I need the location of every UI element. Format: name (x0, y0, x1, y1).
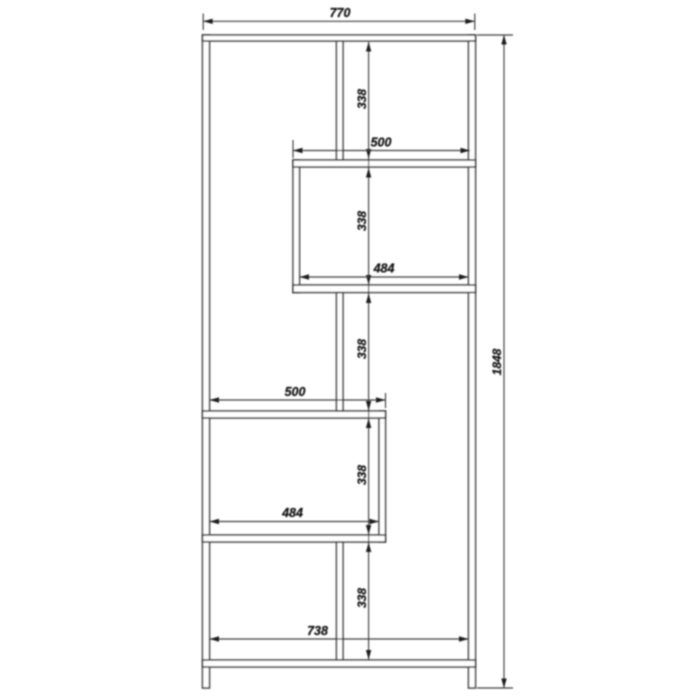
svg-text:338: 338 (355, 588, 369, 608)
svg-text:338: 338 (355, 211, 369, 231)
svg-text:1848: 1848 (490, 348, 504, 375)
svg-text:738: 738 (307, 624, 328, 638)
svg-text:338: 338 (355, 89, 369, 109)
svg-text:770: 770 (330, 6, 351, 20)
svg-text:500: 500 (371, 136, 392, 150)
svg-text:484: 484 (373, 262, 395, 276)
svg-text:484: 484 (281, 506, 303, 520)
svg-text:500: 500 (285, 385, 306, 399)
svg-text:338: 338 (355, 465, 369, 485)
svg-text:338: 338 (355, 339, 369, 359)
